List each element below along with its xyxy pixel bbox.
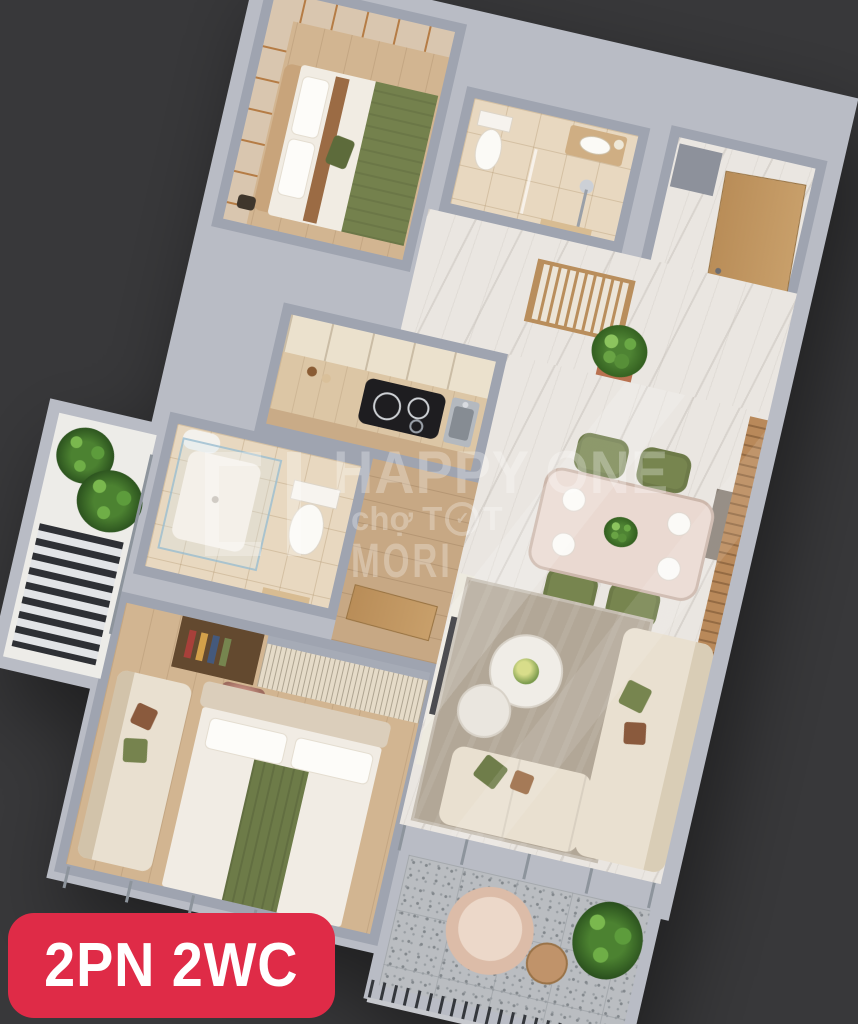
sofa-brown-pillow: [623, 722, 646, 745]
dining-plate: [559, 485, 588, 514]
shower-1-pole: [576, 189, 588, 231]
dining-centerpiece-plant: [601, 514, 641, 551]
balcony-left-slat-mat: [12, 523, 124, 665]
bedroom-2-bookshelf: [171, 616, 265, 686]
toilet-2-bowl: [284, 500, 329, 558]
chaise-back: [76, 669, 135, 860]
badge-label: 2PN 2WC: [44, 930, 298, 1001]
dining-plate: [549, 530, 578, 559]
entry-niche: [670, 143, 723, 196]
chaise-green-pillow: [123, 738, 148, 763]
floor-plan-render: HAPPY ONE chợ T ✓ T MORI 2PN 2WC: [0, 0, 858, 1024]
dining-plate: [654, 554, 683, 583]
badge-2pn-2wc: 2PN 2WC: [8, 913, 335, 1018]
kitchen-sink-basin: [448, 406, 475, 442]
book: [219, 638, 232, 667]
book: [184, 630, 197, 659]
coffee-table-flowers: [510, 656, 541, 687]
dining-plate: [665, 510, 694, 539]
entry-door-handle: [715, 267, 722, 274]
book: [195, 632, 208, 661]
bathroom-2-door-threshold: [262, 587, 310, 604]
kitchen-faucet: [462, 401, 469, 408]
apartment-3d-plan: [0, 0, 858, 1024]
shower-1-glass: [520, 149, 538, 214]
toilet-1-bowl: [471, 126, 506, 173]
bathroom-1-door-threshold: [540, 218, 592, 236]
lounge-chair-cushion: [452, 891, 529, 968]
chaise-brown-pillow: [129, 702, 158, 731]
book: [207, 635, 220, 664]
cooktop-burner: [405, 395, 431, 421]
bedroom-2-door: [346, 584, 438, 641]
shower-2-glass-enclosure: [157, 437, 282, 571]
cooktop-burner: [370, 390, 404, 424]
cooktop-burner: [408, 418, 425, 435]
